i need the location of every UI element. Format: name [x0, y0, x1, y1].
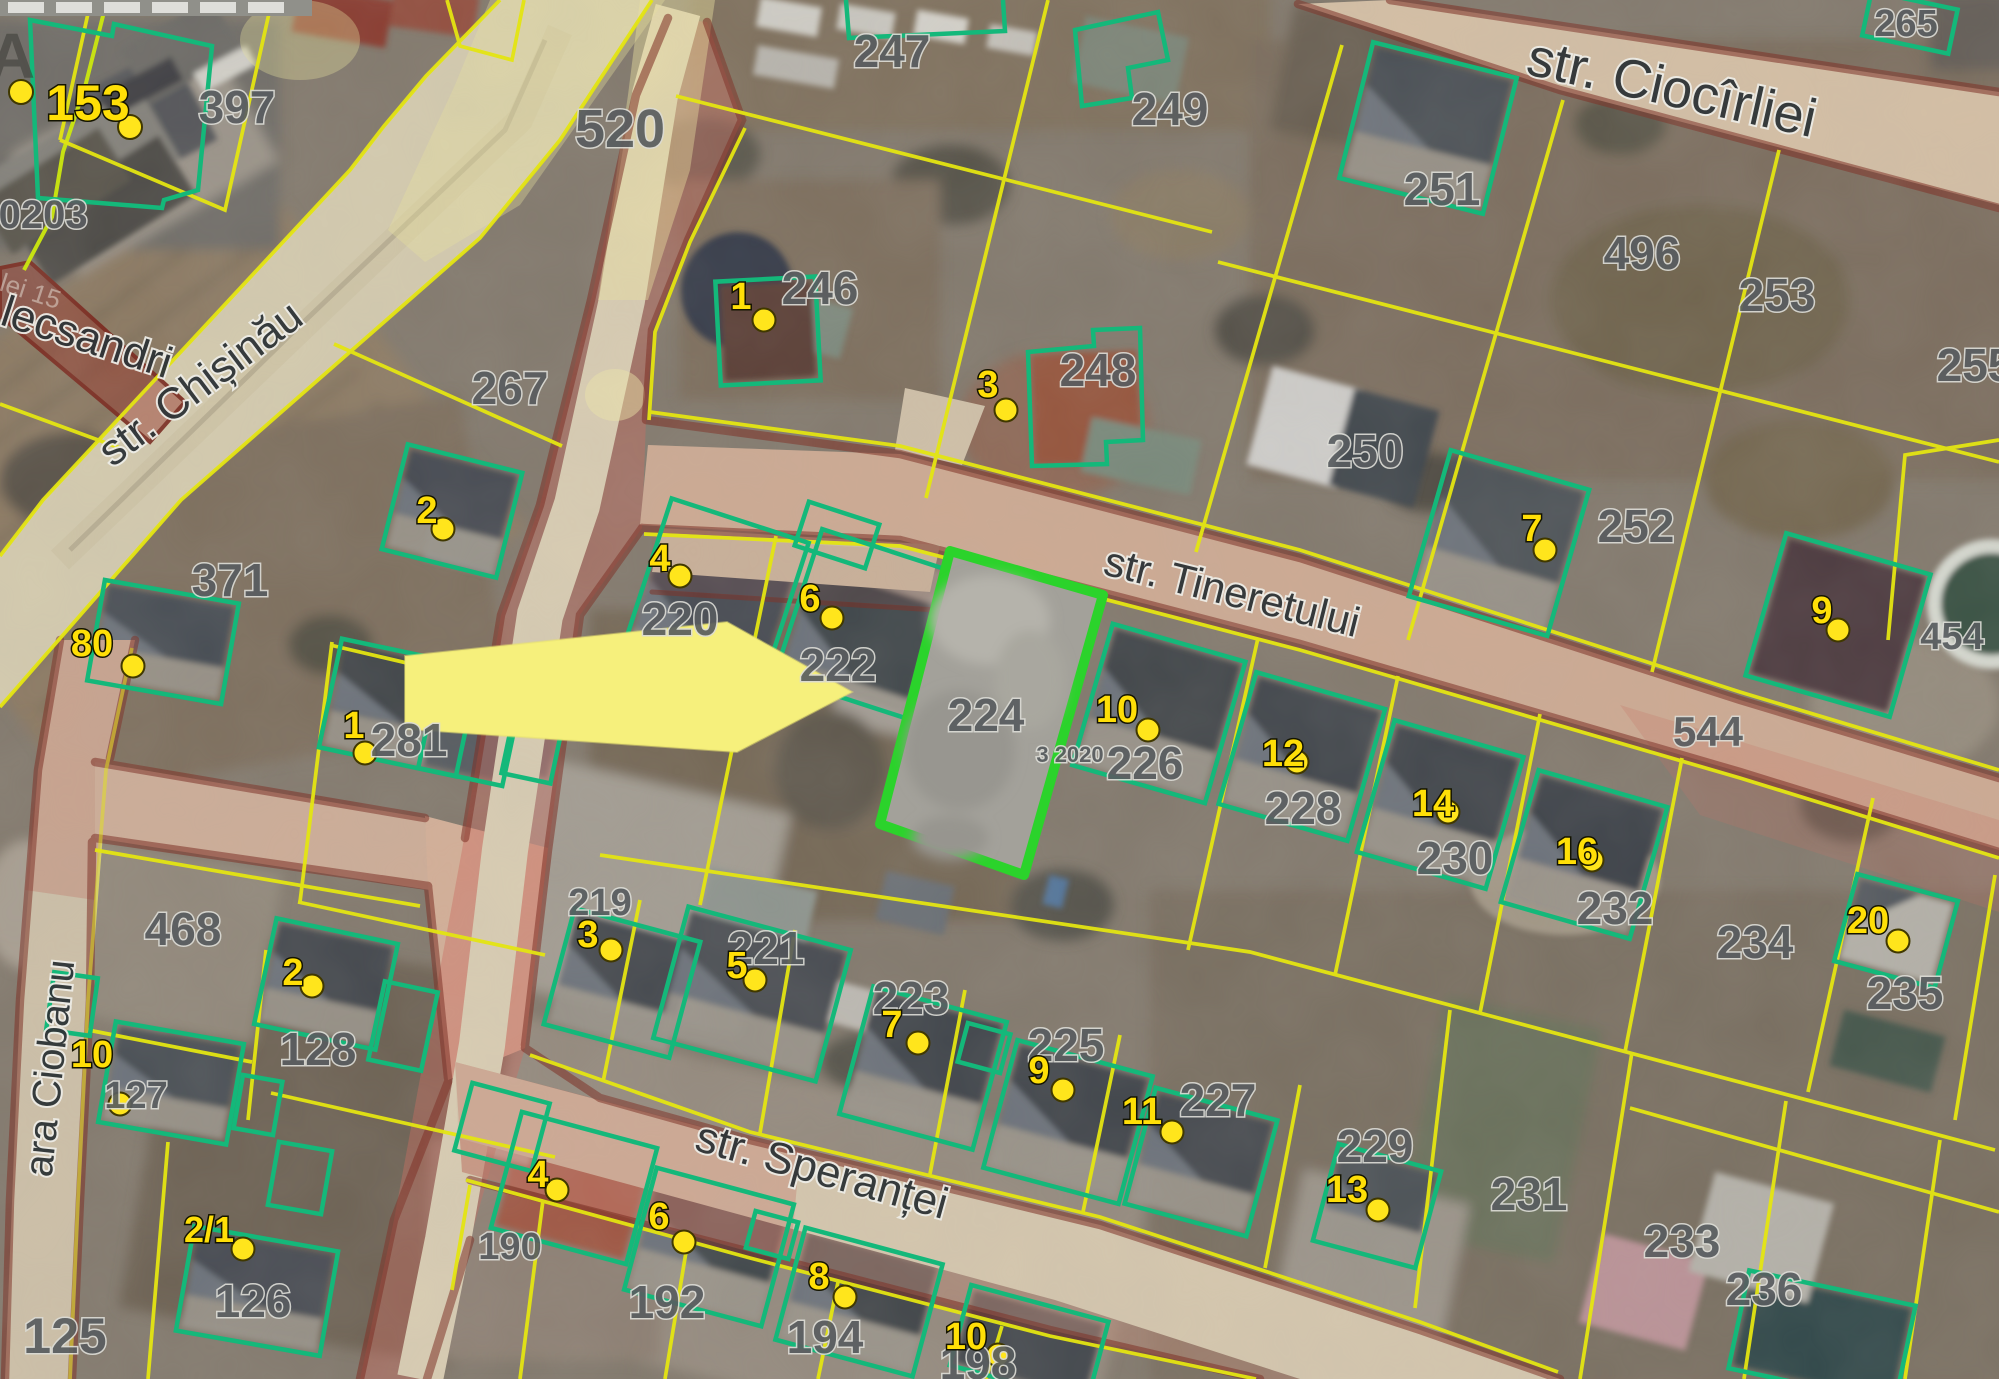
svg-text:520: 520 [575, 99, 665, 159]
svg-text:80: 80 [71, 623, 113, 665]
svg-text:10: 10 [1096, 689, 1138, 731]
svg-text:224: 224 [948, 689, 1025, 741]
svg-text:236: 236 [1726, 1263, 1803, 1315]
svg-text:249: 249 [1132, 83, 1209, 135]
svg-text:397: 397 [199, 81, 276, 133]
svg-text:222: 222 [800, 639, 877, 691]
svg-text:248: 248 [1060, 344, 1137, 396]
svg-text:4: 4 [527, 1154, 548, 1196]
svg-text:153: 153 [46, 75, 129, 131]
svg-text:250: 250 [1327, 425, 1404, 477]
svg-text:2: 2 [282, 952, 303, 994]
svg-text:127: 127 [104, 1075, 167, 1117]
svg-text:247: 247 [854, 25, 931, 77]
svg-text:252: 252 [1598, 500, 1675, 552]
svg-text:13: 13 [1326, 1169, 1368, 1211]
svg-text:231: 231 [1491, 1168, 1568, 1220]
svg-text:251: 251 [1404, 163, 1481, 215]
svg-text:20203: 20203 [0, 193, 88, 237]
svg-text:3 2020: 3 2020 [1036, 742, 1103, 767]
svg-text:234: 234 [1717, 916, 1794, 968]
svg-text:232: 232 [1577, 882, 1654, 934]
svg-text:9: 9 [1811, 590, 1832, 632]
svg-text:1: 1 [343, 705, 364, 747]
svg-text:235: 235 [1867, 967, 1944, 1019]
svg-text:371: 371 [192, 554, 269, 606]
svg-text:496: 496 [1604, 227, 1681, 279]
svg-text:11: 11 [1122, 1091, 1162, 1133]
svg-text:128: 128 [280, 1023, 357, 1075]
svg-text:125: 125 [23, 1308, 106, 1364]
svg-text:12: 12 [1262, 733, 1304, 775]
svg-text:190: 190 [478, 1226, 541, 1268]
svg-text:228: 228 [1265, 782, 1342, 834]
svg-text:6: 6 [648, 1196, 669, 1238]
svg-text:2/1: 2/1 [184, 1209, 234, 1250]
svg-text:267: 267 [472, 362, 549, 414]
svg-text:5: 5 [726, 945, 747, 987]
svg-text:233: 233 [1644, 1215, 1721, 1267]
svg-text:468: 468 [145, 903, 222, 955]
svg-text:A: A [0, 20, 35, 92]
svg-text:220: 220 [642, 593, 719, 645]
svg-text:226: 226 [1107, 737, 1184, 789]
svg-text:454: 454 [1920, 616, 1983, 658]
svg-text:126: 126 [215, 1275, 292, 1327]
svg-text:14: 14 [1412, 783, 1454, 825]
svg-text:10: 10 [945, 1316, 987, 1358]
svg-text:3: 3 [577, 914, 598, 956]
svg-text:229: 229 [1337, 1120, 1414, 1172]
svg-text:6: 6 [799, 578, 820, 620]
svg-text:544: 544 [1673, 708, 1744, 755]
svg-text:8: 8 [808, 1256, 829, 1298]
svg-text:227: 227 [1180, 1074, 1257, 1126]
svg-text:255: 255 [1937, 339, 1999, 391]
svg-text:230: 230 [1417, 832, 1494, 884]
svg-text:4: 4 [649, 538, 670, 580]
svg-text:253: 253 [1739, 269, 1816, 321]
svg-text:7: 7 [881, 1004, 902, 1046]
svg-text:10: 10 [71, 1034, 113, 1076]
svg-text:9: 9 [1028, 1050, 1049, 1092]
svg-text:265: 265 [1874, 3, 1937, 45]
svg-text:20: 20 [1847, 900, 1889, 942]
svg-text:16: 16 [1556, 831, 1598, 873]
svg-text:194: 194 [787, 1311, 864, 1363]
svg-text:1: 1 [730, 276, 751, 318]
svg-text:192: 192 [629, 1276, 706, 1328]
svg-text:3: 3 [977, 364, 998, 406]
svg-text:2: 2 [416, 490, 437, 532]
svg-text:246: 246 [782, 262, 859, 314]
svg-text:7: 7 [1521, 508, 1542, 550]
svg-text:281: 281 [371, 714, 448, 766]
